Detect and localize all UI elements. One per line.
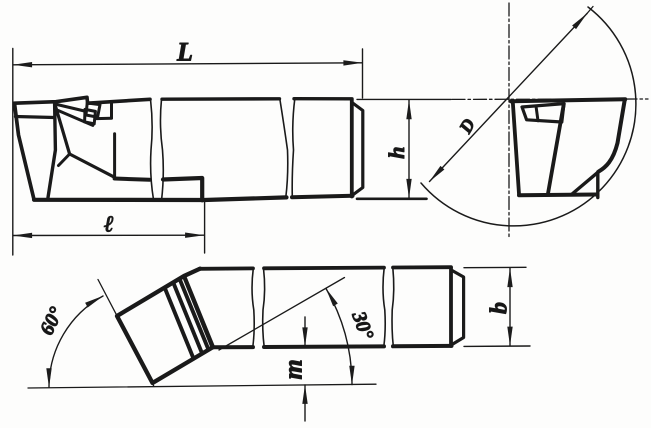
svg-text:m: m bbox=[279, 359, 308, 379]
svg-text:30°: 30° bbox=[347, 308, 378, 343]
svg-text:b: b bbox=[487, 302, 513, 314]
svg-text:60°: 60° bbox=[36, 304, 68, 339]
svg-text:L: L bbox=[176, 38, 193, 67]
svg-text:D: D bbox=[455, 115, 479, 137]
svg-text:ℓ: ℓ bbox=[104, 212, 114, 237]
svg-text:h: h bbox=[384, 147, 409, 159]
